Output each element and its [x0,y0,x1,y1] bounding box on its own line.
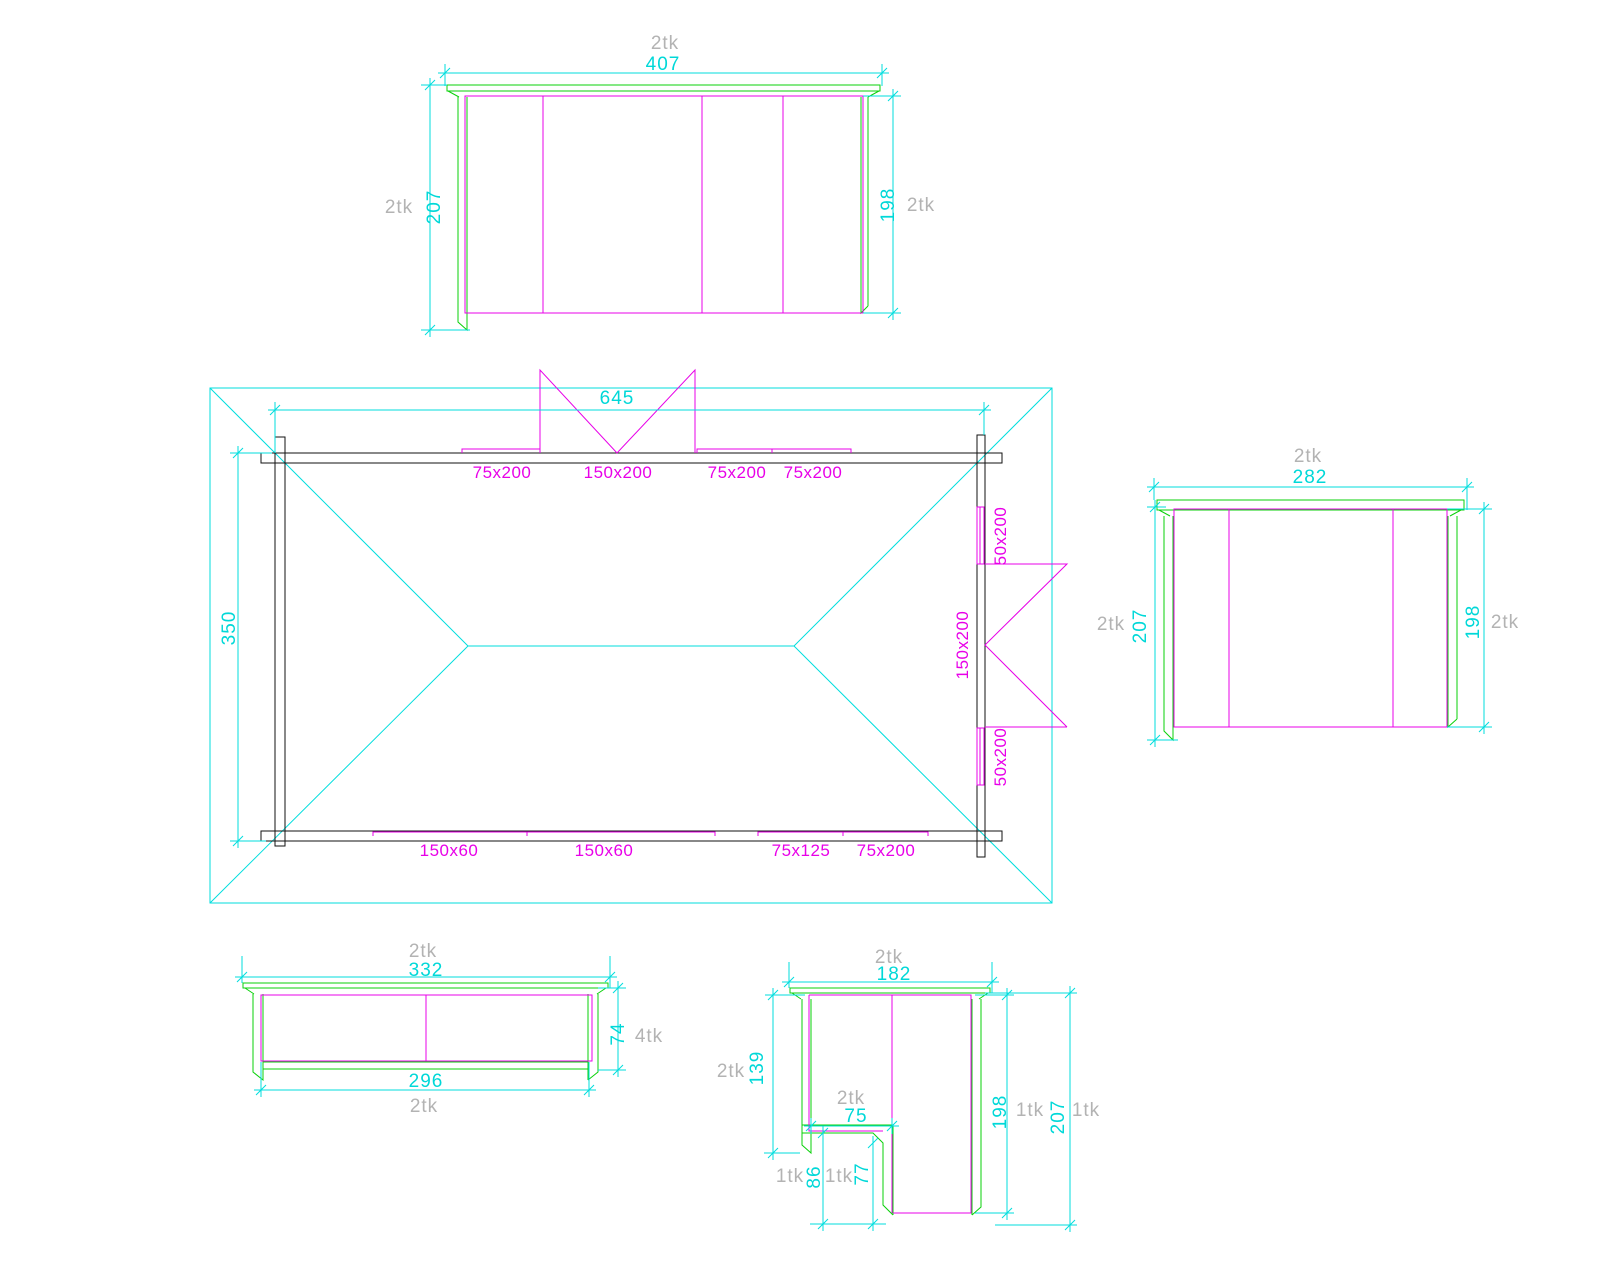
wall-282-right-height-dim: 198 [1463,605,1484,640]
corner-182-foot1-qty-label: 1tk [776,1166,804,1187]
elevation-rail-332: 2tk 332 296 2tk 74 4tk [235,941,663,1117]
plan-length-dim: 645 [600,388,635,409]
right-member-label: 50x200 [991,728,1010,787]
wall-282-dimension-lines [1147,478,1492,747]
wall-407-left-height-dim: 207 [424,190,445,225]
rail-332-height-dim: 74 [608,1022,629,1045]
wall-407-dimension-lines [421,64,901,337]
wall-407-left-qty-label: 2tk [385,197,413,218]
wall-407-panels [465,96,863,313]
corner-182-inner-height-dim: 198 [990,1095,1011,1130]
rail-332-inner-width-dim: 296 [409,1071,444,1092]
top-member-label: 75x200 [473,463,532,482]
corner-182-foot2-qty-label: 1tk [825,1166,853,1187]
wall-407-frame [447,85,880,330]
wall-282-left-height-dim: 207 [1130,609,1151,644]
bottom-member-label: 150x60 [575,841,634,860]
corner-182-left-height-dim: 139 [747,1051,768,1086]
bottom-member-label: 75x200 [857,841,916,860]
corner-182-inner-qty-label: 1tk [1016,1100,1044,1121]
wall-282-left-qty-label: 2tk [1097,614,1125,635]
corner-182-foot1-height-dim: 86 [804,1165,825,1188]
wall-282-right-qty-label: 2tk [1491,612,1519,633]
corner-182-left-qty-label: 2tk [717,1061,745,1082]
right-member-label: 50x200 [991,507,1010,566]
corner-182-outer-height-dim: 207 [1048,1100,1069,1135]
member-markings [373,370,1067,836]
plan-width-dim: 350 [219,611,240,646]
rail-332-qty-label: 2tk [409,941,437,962]
roof-plan-view: 645 350 75x200 150x200 75x200 75x200 50x… [210,370,1067,903]
top-member-label: 150x200 [584,463,653,482]
elevation-wall-282: 2tk 282 2tk 207 198 2tk [1097,446,1519,747]
wall-407-width-dim: 407 [646,54,681,75]
wall-282-qty-label: 2tk [1294,446,1322,467]
wall-407-qty-label: 2tk [651,33,679,54]
top-member-label: 75x200 [708,463,767,482]
elevation-corner-182: 2tk 182 2tk 139 2tk 75 1tk 86 1tk 77 198… [717,947,1100,1232]
rail-332-height-qty-label: 4tk [635,1026,663,1047]
corner-182-foot2-height-dim: 77 [852,1162,873,1185]
right-member-label: 150x200 [953,611,972,680]
bottom-member-label: 150x60 [420,841,479,860]
corner-182-outer-qty-label: 1tk [1072,1100,1100,1121]
wall-282-width-dim: 282 [1293,467,1328,488]
cad-drawing-page: 2tk 407 2tk 207 198 2tk 645 350 75x200 1… [0,0,1600,1280]
rail-332-width-dim: 332 [409,960,444,981]
bottom-member-label: 75x125 [772,841,831,860]
corner-182-width-dim: 182 [877,964,912,985]
cad-drawing-canvas: 2tk 407 2tk 207 198 2tk 645 350 75x200 1… [0,0,1600,1280]
wall-282-frame [1157,500,1464,740]
rail-332-panels [261,995,592,1061]
elevation-wall-407: 2tk 407 2tk 207 198 2tk [385,33,935,337]
top-member-label: 75x200 [784,463,843,482]
wall-282-panels [1174,509,1447,727]
wall-407-right-qty-label: 2tk [907,195,935,216]
corner-182-notch-width-dim: 75 [844,1106,867,1127]
rail-332-inner-qty-label: 2tk [410,1096,438,1117]
wall-407-right-height-dim: 198 [878,188,899,223]
